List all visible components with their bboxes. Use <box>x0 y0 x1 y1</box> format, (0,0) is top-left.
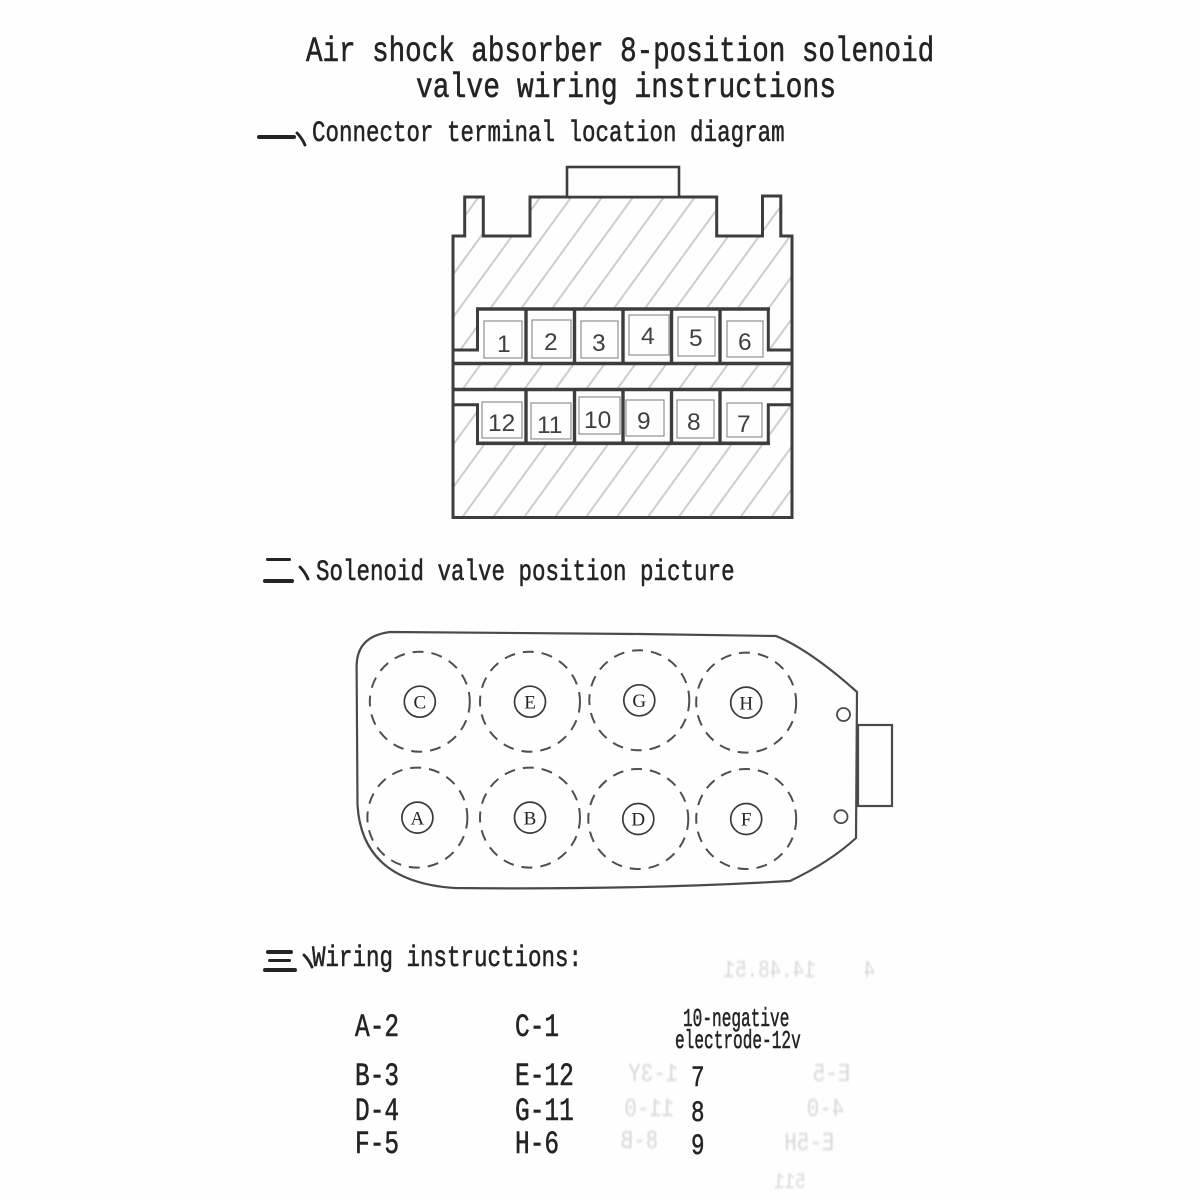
svg-text:G: G <box>632 691 646 712</box>
svg-text:2: 2 <box>544 329 558 356</box>
svg-text:1: 1 <box>497 331 511 358</box>
svg-text:6: 6 <box>738 329 752 356</box>
svg-text:4: 4 <box>641 323 655 350</box>
svg-text:7: 7 <box>737 411 751 438</box>
svg-text:D: D <box>631 810 645 831</box>
svg-text:9: 9 <box>637 408 651 435</box>
svg-text:5: 5 <box>689 325 703 352</box>
svg-text:8: 8 <box>687 409 701 436</box>
svg-text:B: B <box>524 808 537 829</box>
svg-text:A: A <box>411 808 425 829</box>
svg-text:C: C <box>413 693 426 714</box>
svg-text:3: 3 <box>592 330 606 357</box>
svg-text:10: 10 <box>584 407 611 434</box>
svg-text:12: 12 <box>488 410 515 437</box>
svg-text:E: E <box>524 693 536 714</box>
svg-text:H: H <box>739 693 753 714</box>
svg-text:F: F <box>741 810 752 831</box>
svg-text:11: 11 <box>537 412 562 439</box>
